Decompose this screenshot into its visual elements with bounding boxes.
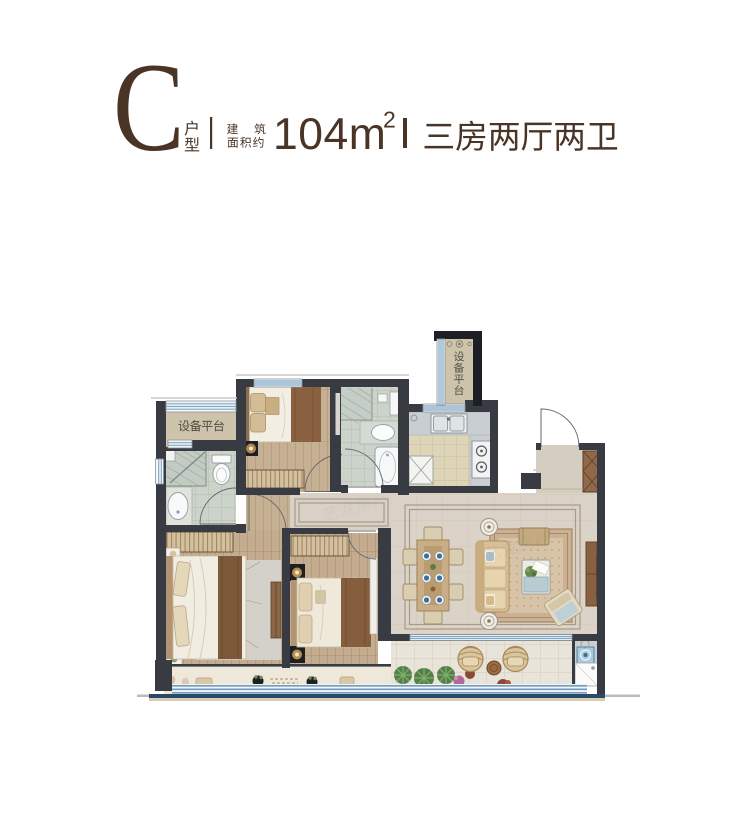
svg-text:104m: 104m <box>273 110 386 159</box>
svg-text:2: 2 <box>383 107 396 133</box>
svg-text:C: C <box>113 38 185 178</box>
